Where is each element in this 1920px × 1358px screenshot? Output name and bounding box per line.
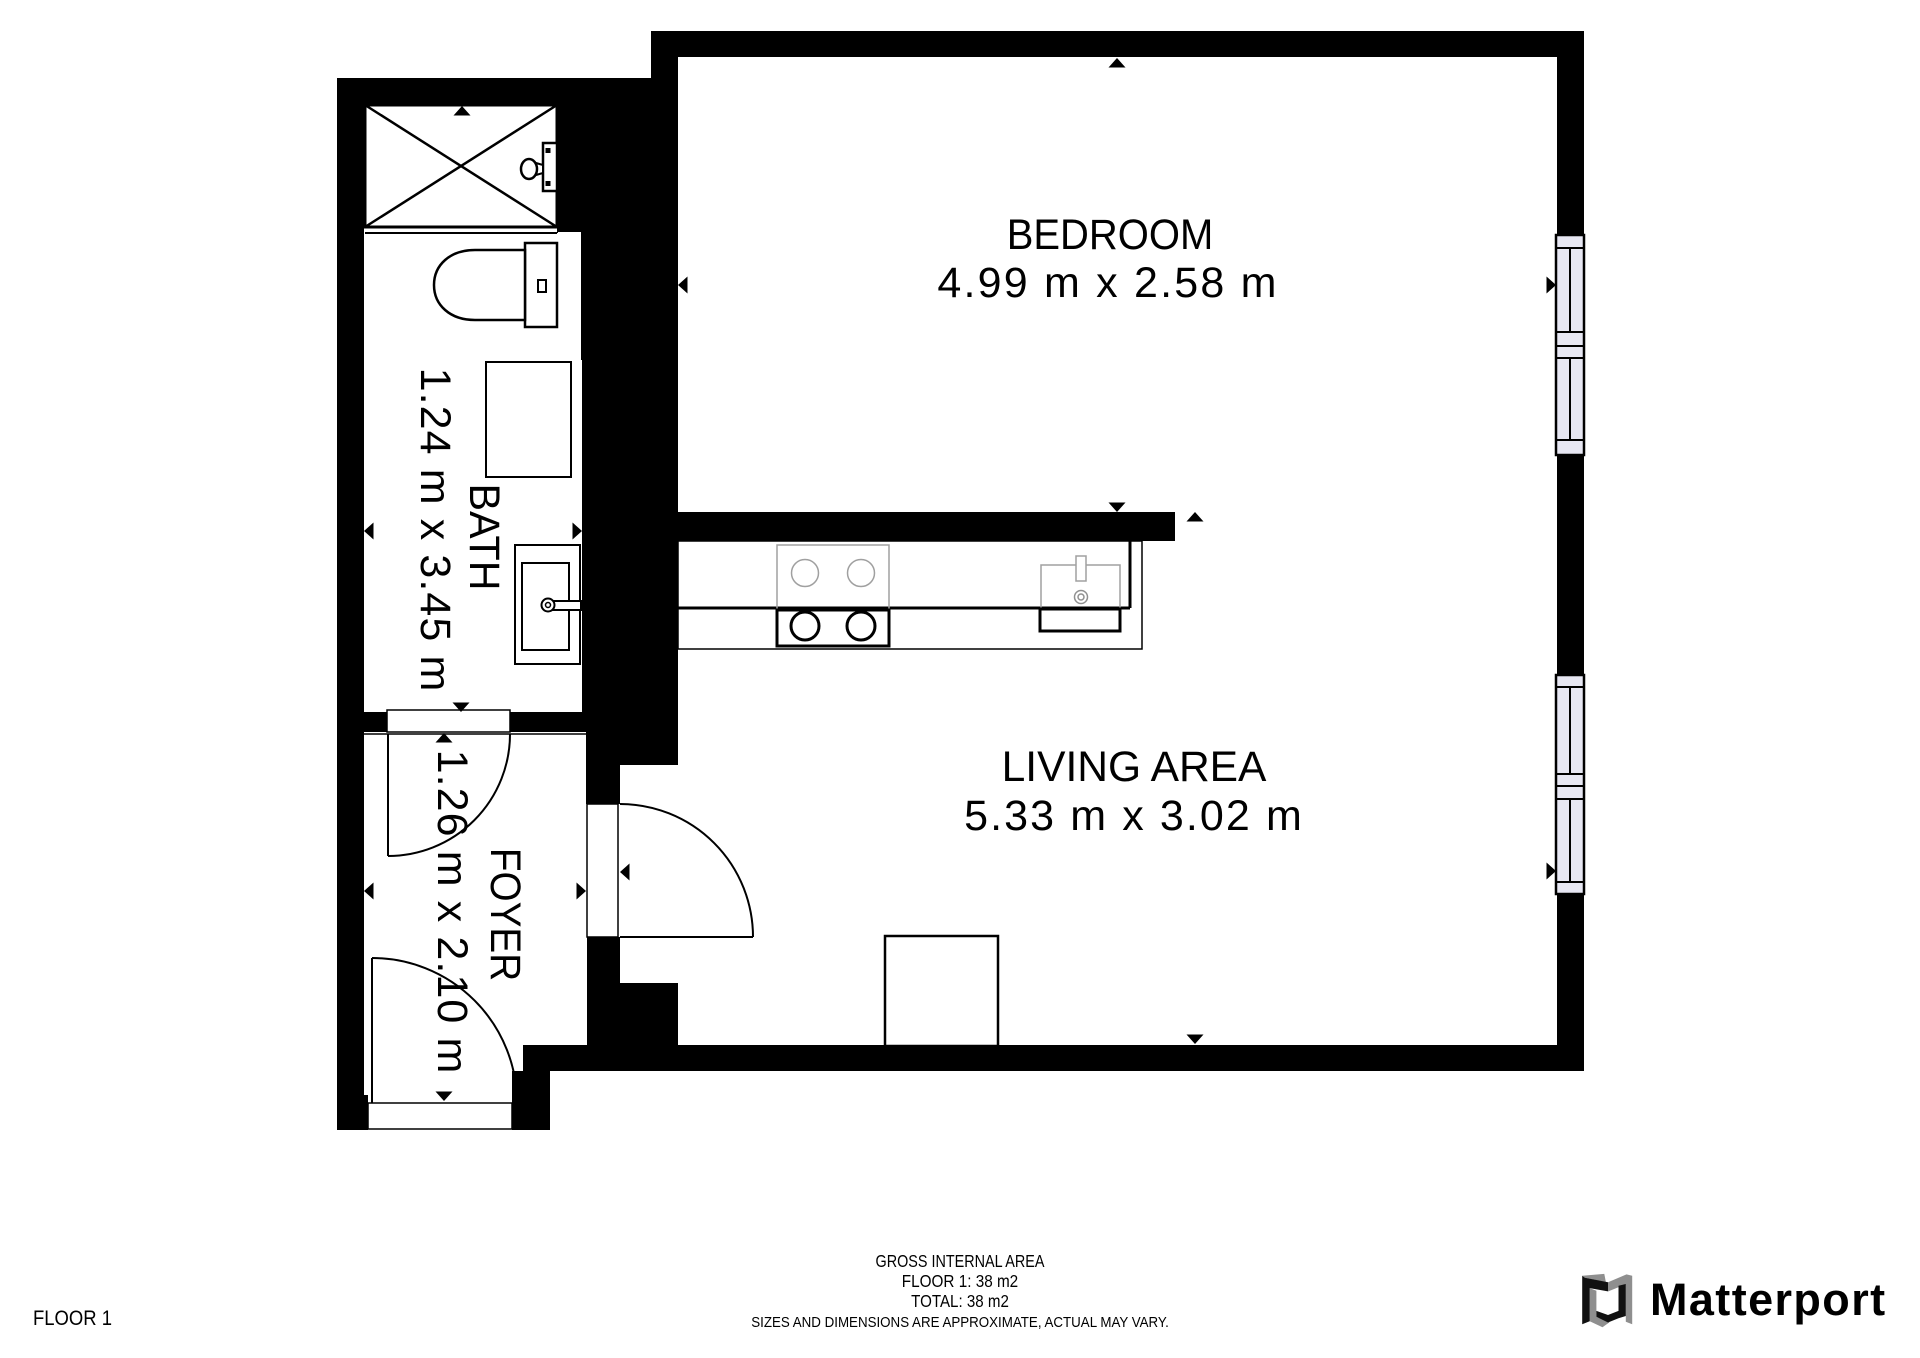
svg-text:GROSS INTERNAL AREA: GROSS INTERNAL AREA bbox=[876, 1252, 1045, 1272]
svg-text:FOYER: FOYER bbox=[482, 848, 530, 981]
svg-text:Matterport: Matterport bbox=[1650, 1274, 1887, 1325]
svg-text:LIVING AREA: LIVING AREA bbox=[1002, 743, 1267, 791]
svg-text:SIZES AND DIMENSIONS ARE APPRO: SIZES AND DIMENSIONS ARE APPROXIMATE, AC… bbox=[751, 1314, 1169, 1331]
svg-text:4.99 m x 2.58 m: 4.99 m x 2.58 m bbox=[937, 259, 1278, 307]
svg-text:BEDROOM: BEDROOM bbox=[1007, 210, 1214, 259]
svg-text:BATH: BATH bbox=[461, 484, 509, 591]
svg-text:TOTAL: 38 m2: TOTAL: 38 m2 bbox=[911, 1291, 1009, 1312]
svg-text:FLOOR 1: 38 m2: FLOOR 1: 38 m2 bbox=[902, 1271, 1018, 1291]
svg-text:FLOOR 1: FLOOR 1 bbox=[33, 1307, 112, 1330]
svg-text:5.33 m x 3.02 m: 5.33 m x 3.02 m bbox=[964, 792, 1304, 840]
svg-text:1.26 m x 2.10 m: 1.26 m x 2.10 m bbox=[428, 750, 476, 1075]
svg-text:1.24 m x 3.45 m: 1.24 m x 3.45 m bbox=[411, 368, 459, 693]
